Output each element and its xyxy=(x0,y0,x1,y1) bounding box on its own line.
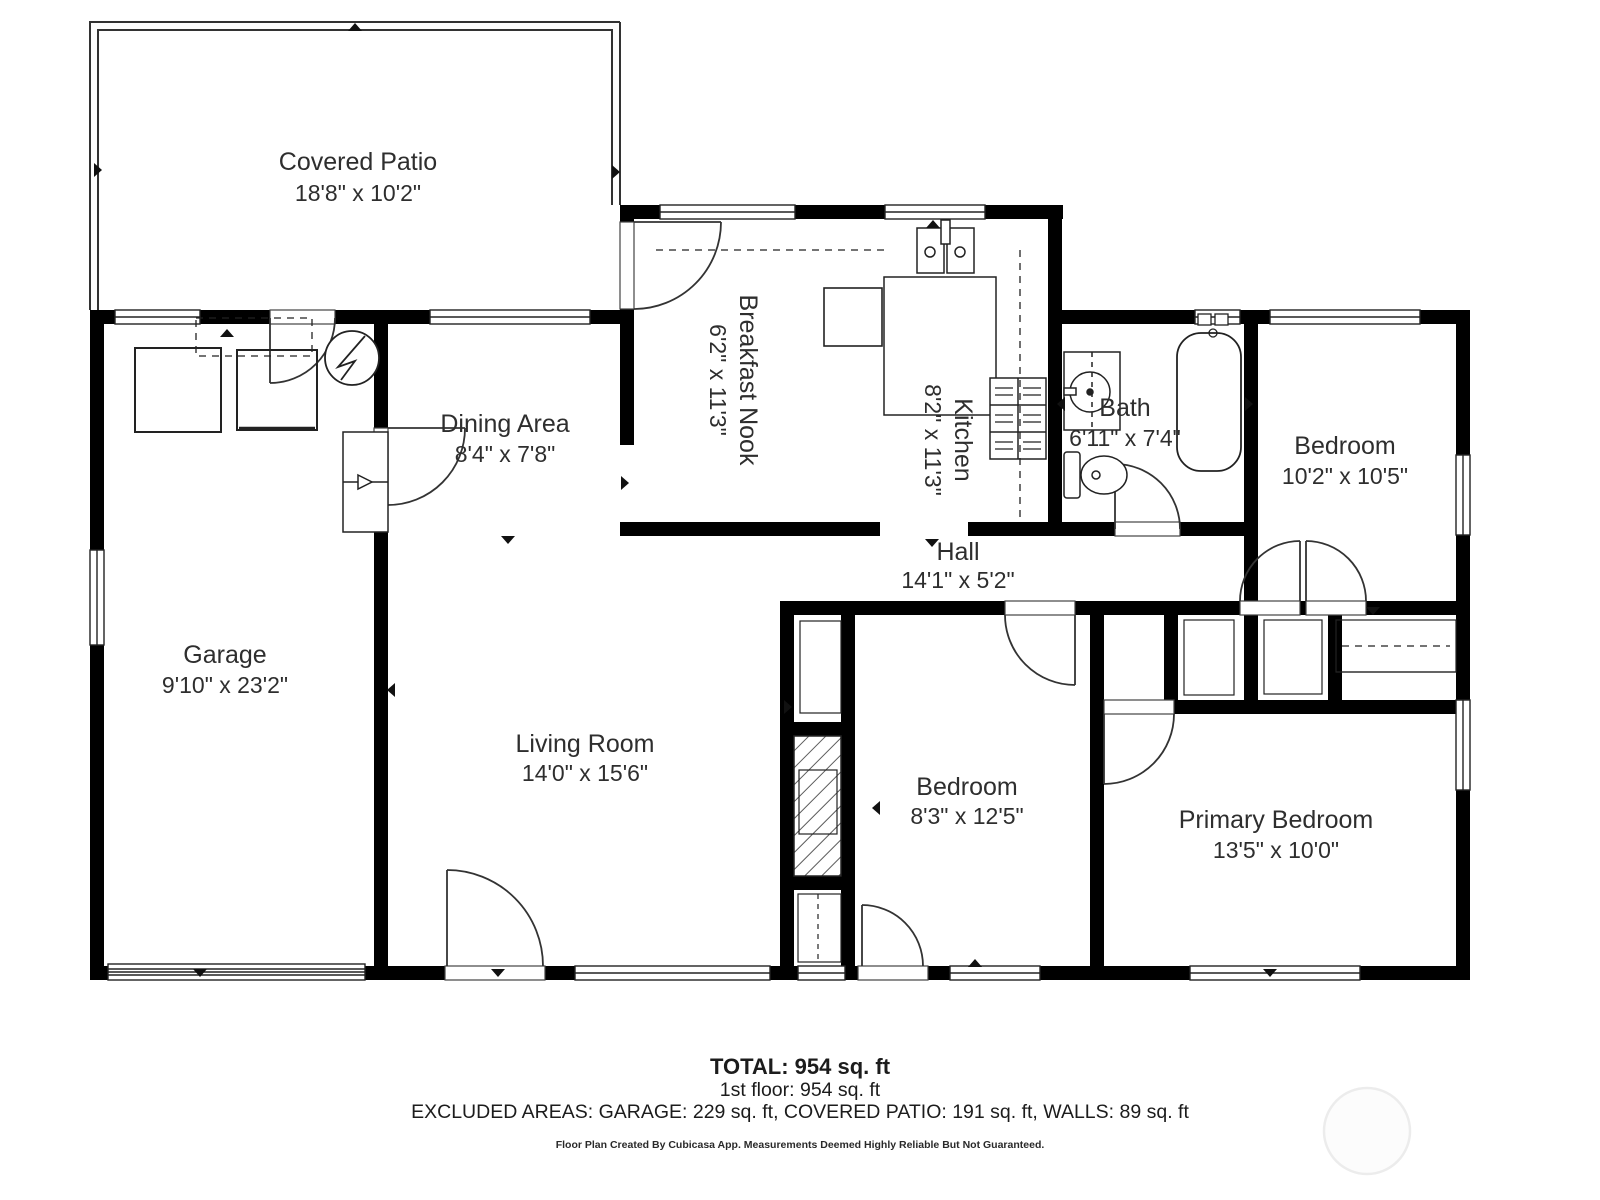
window xyxy=(1456,700,1470,790)
window xyxy=(1270,310,1420,324)
fireplace-icon xyxy=(794,736,841,876)
window xyxy=(660,205,795,219)
total-area-text: TOTAL: 954 sq. ft xyxy=(0,1054,1600,1080)
closet-shelf xyxy=(798,894,841,962)
stairs-icon xyxy=(343,432,388,532)
door-patio-nook xyxy=(634,222,721,309)
stove-icon xyxy=(990,378,1046,459)
window xyxy=(798,966,845,980)
door-front xyxy=(447,870,543,966)
room-dims-bedroom2: 10'2" x 10'5" xyxy=(1282,463,1408,489)
room-dims-kitchen: 8'2" x 11'3" xyxy=(920,384,946,496)
garage-door xyxy=(108,964,365,980)
room-label-covered-patio: Covered Patio xyxy=(279,148,437,176)
room-dims-breakfast-nook: 6'2" x 11'3" xyxy=(705,324,731,436)
window xyxy=(950,966,1040,980)
room-label-kitchen: Kitchen xyxy=(949,398,977,481)
excluded-areas-text: EXCLUDED AREAS: GARAGE: 229 sq. ft, COVE… xyxy=(0,1101,1600,1124)
room-dims-primary: 13'5" x 10'0" xyxy=(1213,837,1339,863)
kitchen-sink-icon xyxy=(917,220,974,273)
floor-plan-canvas: Covered Patio 18'8" x 10'2" Dining Area … xyxy=(0,0,1600,1200)
door-garage-dining xyxy=(388,428,465,505)
window xyxy=(885,205,985,219)
closet-shelf xyxy=(1336,620,1456,672)
room-label-bath: Bath xyxy=(1099,394,1150,422)
window xyxy=(1456,455,1470,535)
room-dims-covered-patio: 18'8" x 10'2" xyxy=(295,180,421,206)
room-label-hall: Hall xyxy=(936,538,979,566)
room-dims-bath: 6'11" x 7'4" xyxy=(1069,425,1181,451)
door-primary xyxy=(1104,714,1174,784)
room-label-living: Living Room xyxy=(516,730,655,758)
room-label-breakfast-nook: Breakfast Nook xyxy=(734,295,762,466)
first-floor-area-text: 1st floor: 954 sq. ft xyxy=(0,1079,1600,1102)
room-dims-living: 14'0" x 15'6" xyxy=(522,760,648,786)
room-dims-dining: 8'4" x 7'8" xyxy=(455,441,556,467)
window xyxy=(115,310,200,324)
room-dims-garage: 9'10" x 23'2" xyxy=(162,672,288,698)
window xyxy=(575,966,770,980)
washer-icon xyxy=(135,348,221,432)
disclaimer-text: Floor Plan Created By Cubicasa App. Meas… xyxy=(0,1139,1600,1151)
window xyxy=(430,310,590,324)
door-bedroom3-exterior xyxy=(862,905,923,966)
refrigerator-icon xyxy=(824,288,882,346)
room-label-dining: Dining Area xyxy=(440,410,569,438)
room-dims-bedroom3: 8'3" x 12'5" xyxy=(910,803,1023,829)
door-bedroom2-b xyxy=(1306,541,1366,601)
window xyxy=(1190,966,1360,980)
room-dims-hall: 14'1" x 5'2" xyxy=(901,567,1014,593)
dryer-icon xyxy=(237,350,317,430)
window xyxy=(90,550,104,645)
toilet-icon xyxy=(1064,452,1127,498)
room-label-bedroom3: Bedroom xyxy=(916,773,1017,801)
closet-shelf xyxy=(1264,620,1322,694)
room-label-bedroom2: Bedroom xyxy=(1294,432,1395,460)
bathtub-icon xyxy=(1177,314,1241,471)
closet-shelf xyxy=(1184,620,1234,695)
closet-shelf xyxy=(800,621,841,713)
door-bedroom3 xyxy=(1005,615,1075,685)
room-label-garage: Garage xyxy=(183,641,266,669)
water-heater-icon xyxy=(325,331,379,385)
room-label-primary: Primary Bedroom xyxy=(1179,806,1374,834)
